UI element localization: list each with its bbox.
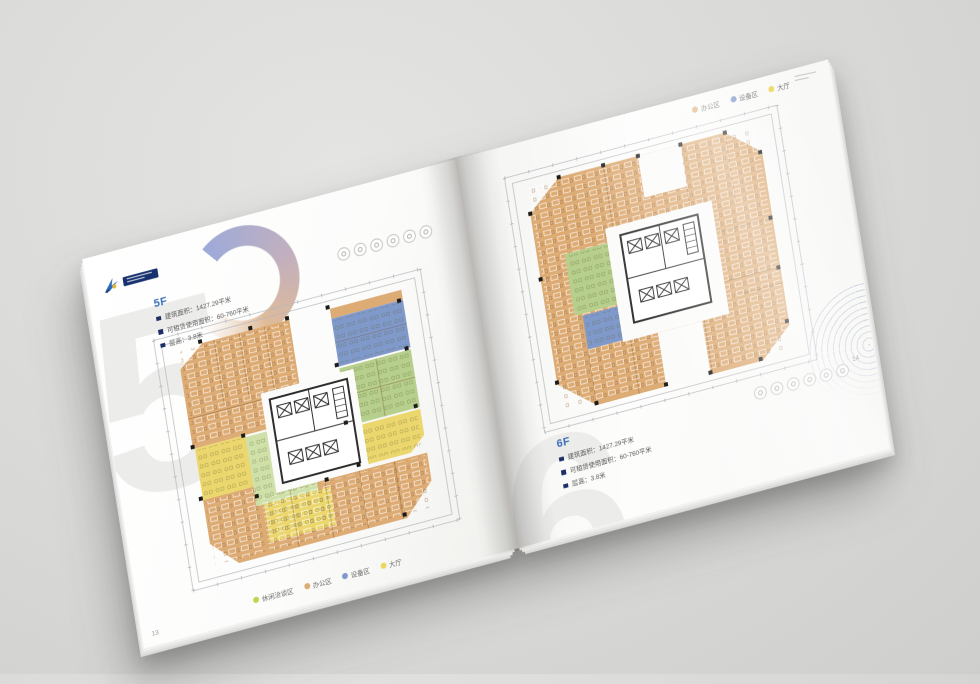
- amenity-icon: [386, 233, 401, 249]
- legend-label: 办公区: [312, 575, 332, 590]
- legend-label: 设备区: [738, 88, 758, 103]
- page-number: 13: [151, 629, 159, 638]
- legend-dot: [730, 96, 737, 104]
- bullet-square-icon: [563, 483, 568, 489]
- bullet-square-icon: [156, 316, 161, 322]
- legend-label: 办公区: [700, 98, 720, 113]
- legend-label: 大厅: [776, 79, 790, 92]
- amenity-icon: [336, 246, 351, 262]
- bullet-square-icon: [559, 456, 564, 462]
- amenity-icon-row: [336, 224, 433, 262]
- amenity-icon: [770, 380, 785, 396]
- legend-label: 设备区: [350, 565, 370, 580]
- amenity-icon: [802, 371, 817, 387]
- legend-dot: [768, 85, 775, 93]
- legend-dot: [342, 572, 349, 580]
- legend-dot: [692, 106, 699, 114]
- legend-dot: [253, 596, 260, 604]
- bullet-square-icon: [158, 329, 163, 335]
- legend-item: 设备区: [341, 565, 370, 582]
- legend-dot: [303, 583, 310, 591]
- legend-item: 大厅: [768, 79, 791, 95]
- amenity-icon: [369, 237, 384, 253]
- amenity-icon: [353, 241, 368, 257]
- bullet-square-icon: [160, 343, 165, 349]
- legend-item: 设备区: [729, 88, 758, 105]
- building-core: [620, 215, 711, 323]
- legend-label: 大厅: [388, 556, 402, 569]
- legend-item: 办公区: [303, 575, 332, 592]
- legend-item: 休闲洽谈区: [252, 585, 294, 606]
- service-notch: [658, 321, 711, 387]
- amenity-icon: [786, 376, 801, 392]
- amenity-icon: [753, 385, 768, 401]
- legend-item: 办公区: [691, 98, 720, 115]
- bullet-square-icon: [561, 470, 566, 476]
- legend-label: 休闲洽谈区: [261, 585, 294, 603]
- backdrop: 5 5F 建筑面积：1427.29平米 可租赁使用面积：60-760平米 层高：…: [0, 0, 980, 674]
- amenity-icon: [402, 228, 417, 244]
- amenity-icon: [419, 224, 434, 240]
- corner-caption: [795, 71, 821, 83]
- legend-item: 大厅: [379, 556, 402, 572]
- legend-dot: [380, 562, 387, 570]
